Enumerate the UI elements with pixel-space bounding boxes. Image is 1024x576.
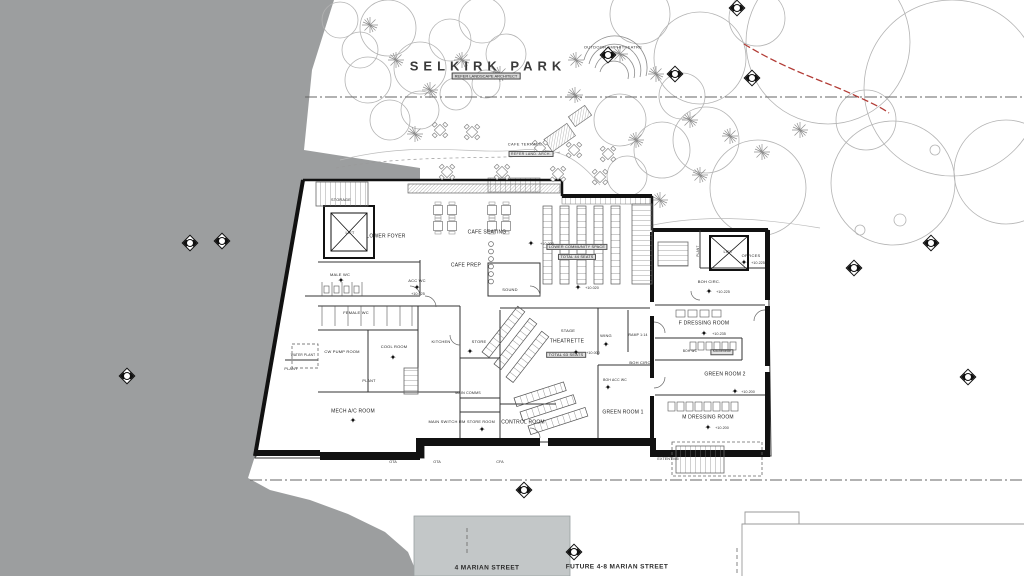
survey-marker-circle xyxy=(570,548,578,556)
street-blocks xyxy=(414,512,1024,576)
survey-marker-circle xyxy=(927,239,935,247)
building-plan xyxy=(255,178,771,476)
survey-marker-circle xyxy=(604,51,612,59)
survey-marker-circle xyxy=(123,372,131,380)
survey-marker-circle xyxy=(218,237,226,245)
amphitheatre-steps xyxy=(584,36,647,79)
red-boundary-line xyxy=(744,44,889,113)
survey-marker-circle xyxy=(748,74,756,82)
survey-marker-circle xyxy=(671,70,679,78)
survey-marker-circle xyxy=(850,264,858,272)
survey-marker-circle xyxy=(733,4,741,12)
floor-plan-canvas: SELKIRK PARK REFER LANDSCAPE ARCHITECT O… xyxy=(0,0,1024,576)
survey-marker-circle xyxy=(186,239,194,247)
survey-marker-circle xyxy=(520,486,528,494)
survey-marker-circle xyxy=(964,373,972,381)
floor-plan-drawing xyxy=(0,0,1024,576)
